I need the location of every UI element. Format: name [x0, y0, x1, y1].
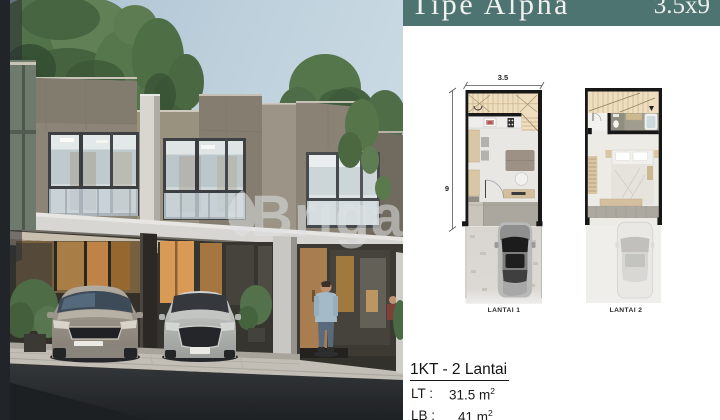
- svg-text:LANTAI 1: LANTAI 1: [488, 307, 521, 314]
- svg-text:LANTAI 2: LANTAI 2: [610, 307, 643, 314]
- svg-text:3.5: 3.5: [498, 73, 508, 82]
- svg-text:9: 9: [445, 184, 449, 193]
